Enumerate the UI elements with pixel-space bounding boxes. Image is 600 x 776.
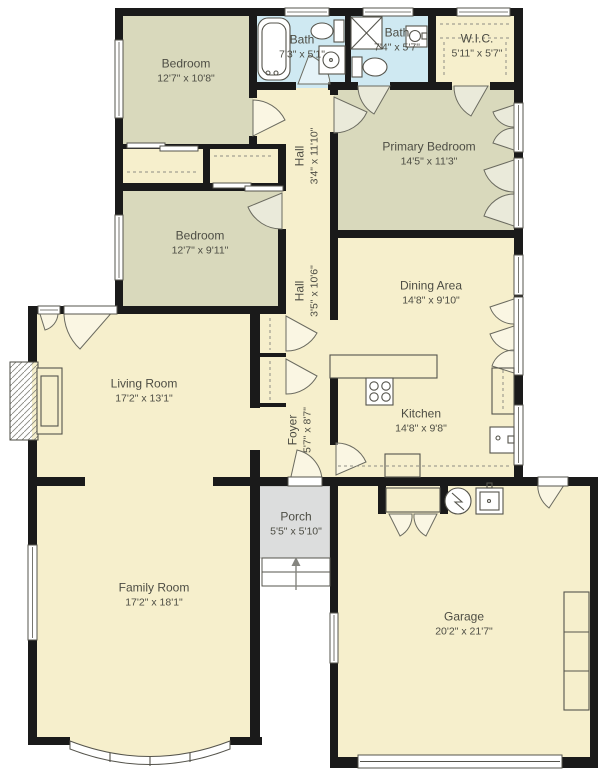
porch-floor: [258, 486, 330, 558]
window-icon: [514, 297, 523, 375]
bathtub-icon: [258, 18, 290, 80]
window-icon: [38, 306, 60, 314]
stove-icon: [366, 378, 393, 405]
sink-icon: [406, 26, 427, 47]
bay-window-icon: [70, 737, 230, 766]
water-heater-icon: [445, 488, 471, 514]
sink-icon: [319, 46, 345, 74]
window-icon: [115, 40, 123, 118]
floor-plan-drawing: [0, 0, 600, 776]
floor-plan: Bedroom12'7" x 10'8" Bath7'3" x 5'1" Bat…: [0, 0, 600, 776]
window-icon: [115, 215, 123, 280]
toilet-icon: [352, 57, 387, 77]
window-icon: [330, 613, 338, 663]
window-icon: [514, 405, 523, 465]
garage-door-icon: [358, 755, 562, 768]
window-icon: [363, 8, 413, 16]
utility-sink-icon: [476, 483, 503, 514]
window-icon: [514, 255, 523, 295]
window-icon: [28, 545, 37, 640]
shower-icon: [351, 17, 382, 49]
window-icon: [514, 103, 523, 152]
window-icon: [285, 8, 329, 16]
kitchen-sink-icon: [490, 427, 514, 453]
window-icon: [514, 158, 523, 228]
window-icon: [457, 8, 510, 16]
fireplace-icon: [10, 362, 62, 440]
